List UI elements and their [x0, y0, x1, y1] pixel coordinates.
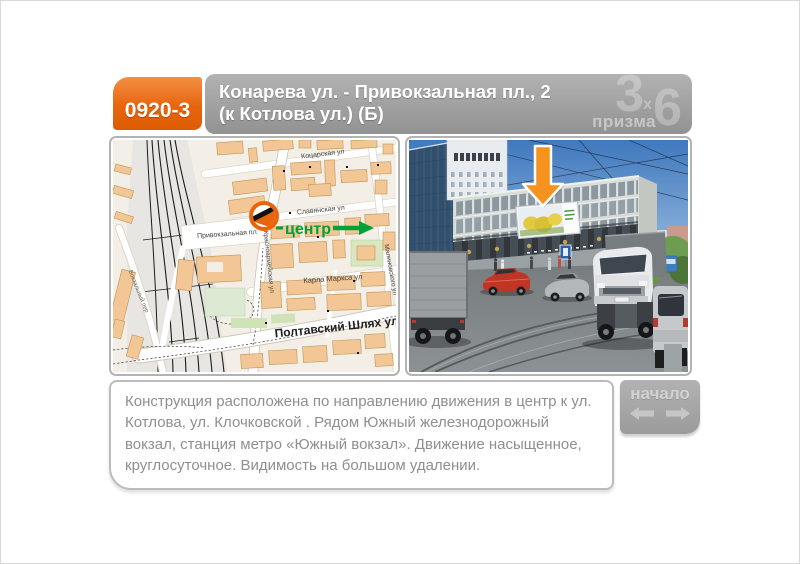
arrow-left-icon	[630, 407, 654, 420]
description-text: Конструкция расположена по направлению д…	[125, 391, 598, 476]
location-map: Коцарская ул Славянская ул Привокзальная…	[109, 136, 400, 376]
prizma-logo: 3 х 6 призма	[576, 74, 686, 134]
silver-suv	[653, 286, 688, 372]
board-id: 0920-3	[125, 99, 190, 123]
title-line-2: (к Котлова ул.) (Б)	[219, 103, 551, 125]
page-title: Конарева ул. - Привокзальная пл., 2 (к К…	[219, 81, 551, 125]
billboard-marker-icon	[249, 203, 278, 229]
map-canvas: Коцарская ул Славянская ул Привокзальная…	[113, 140, 396, 372]
photo-canvas	[409, 140, 688, 372]
nav-box: начало	[620, 380, 700, 434]
catalog-slide: 0920-3 Конарева ул. - Привокзальная пл.,…	[0, 0, 800, 564]
title-line-1: Конарева ул. - Привокзальная пл., 2	[219, 81, 551, 103]
nav-prev-button[interactable]	[629, 406, 655, 421]
logo-digit-6: 6	[653, 82, 682, 134]
rooftop-sign-building	[447, 140, 507, 200]
nav-next-button[interactable]	[665, 406, 691, 421]
logo-name: призма	[592, 112, 656, 132]
billboard	[516, 201, 581, 238]
description-box: Конструкция расположена по направлению д…	[109, 380, 614, 490]
title-bar: Конарева ул. - Привокзальная пл., 2 (к К…	[205, 74, 692, 134]
board-id-badge: 0920-3	[113, 77, 202, 130]
nav-label: начало	[620, 384, 700, 404]
centre-label: центр	[285, 221, 331, 238]
location-photo	[405, 136, 692, 376]
arrow-right-icon	[666, 407, 690, 420]
